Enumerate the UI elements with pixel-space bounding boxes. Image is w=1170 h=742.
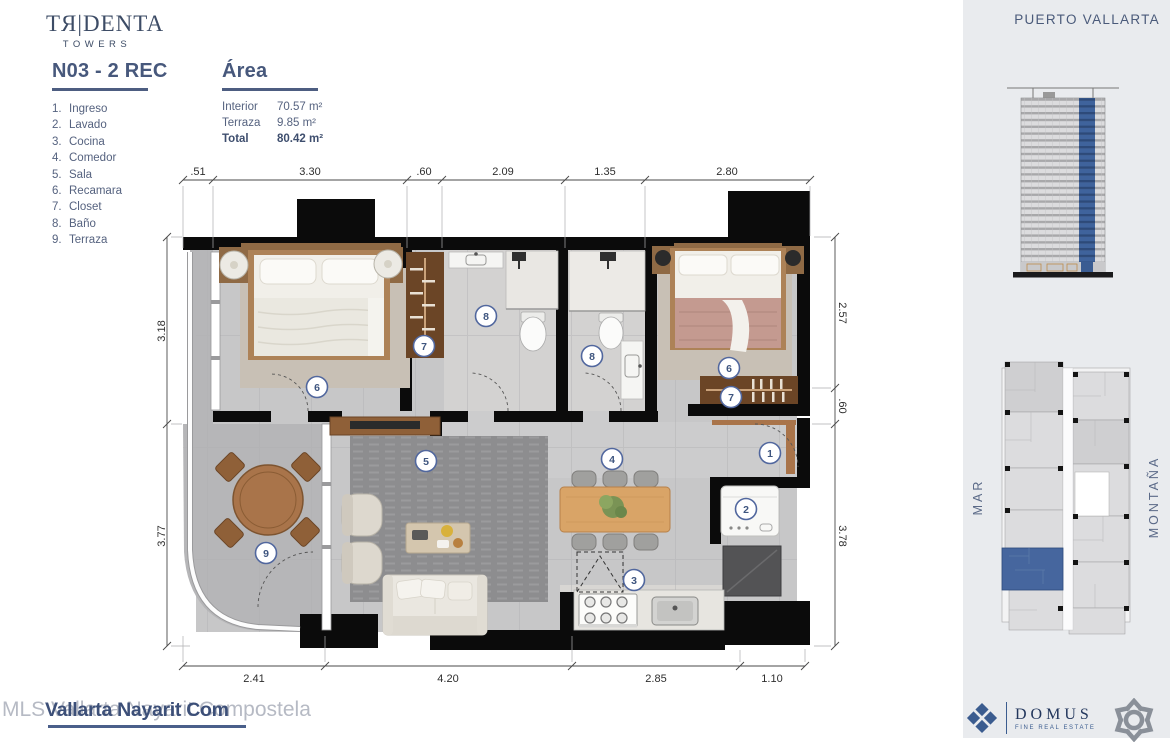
unit-title-rule [52,88,148,91]
area-row: Terraza9.85 m² [222,116,323,132]
city-label: PUERTO VALLARTA [1000,12,1160,27]
svg-text:9: 9 [263,548,269,560]
svg-text:8: 8 [483,311,489,323]
domus-tagline: FINE REAL ESTATE [1015,725,1096,731]
room-marker: 6 [719,358,740,379]
svg-text:2.85: 2.85 [645,673,666,685]
area-row: Interior70.57 m² [222,100,323,116]
closet-2 [700,376,798,404]
room-marker: 6 [307,377,328,398]
svg-text:6: 6 [726,363,732,375]
unit-title: N03 - 2 REC [52,60,168,83]
svg-text:8: 8 [589,351,595,363]
dining [560,471,670,550]
domus-pinwheel-icon [966,702,998,734]
svg-text:1.35: 1.35 [594,166,615,178]
svg-text:.60: .60 [836,398,848,413]
legend-item: 6.Recamara [52,183,122,199]
svg-text:5: 5 [423,456,429,468]
svg-text:7: 7 [728,392,734,404]
svg-text:2: 2 [743,504,749,516]
legend-item: 8.Baño [52,216,122,232]
svg-text:4.20: 4.20 [437,673,458,685]
svg-text:.51: .51 [190,166,205,178]
svg-text:3.30: 3.30 [299,166,320,178]
legend-item: 9.Terraza [52,232,122,248]
legend-item: 4.Comedor [52,150,122,166]
svg-text:1: 1 [767,448,773,460]
room-legend: 1.Ingreso 2.Lavado 3.Cocina 4.Comedor 5.… [52,101,122,249]
svg-text:2.80: 2.80 [716,166,737,178]
domus-divider [1006,702,1007,734]
legend-item: 5.Sala [52,167,122,183]
svg-text:2.09: 2.09 [492,166,513,178]
svg-text:2.57: 2.57 [836,302,848,323]
area-title: Área [222,60,267,83]
mountain-label: MONTAÑA [1147,447,1161,547]
legend-item: 7.Closet [52,199,122,215]
svg-text:3.77: 3.77 [156,525,168,546]
room-marker: 2 [736,499,757,520]
room-marker: 9 [256,543,277,564]
roof-box [1043,92,1055,98]
room-marker: 8 [476,306,497,327]
svg-text:7: 7 [421,341,427,353]
domus-name: DOMUS [1015,706,1096,724]
tower-elevation [1003,78,1123,288]
svg-text:6: 6 [314,382,320,394]
legend-item: 3.Cocina [52,134,122,150]
svg-text:3.18: 3.18 [156,320,168,341]
sea-label: MAR [971,457,985,537]
room-marker: 5 [416,451,437,472]
tower-highlight-stripe [1079,98,1095,272]
domus-logo: DOMUS FINE REAL ESTATE [966,702,1096,734]
listing-title-rule [48,725,246,728]
svg-text:4: 4 [609,454,615,466]
partner-logo-icon [1110,698,1158,742]
svg-text:1.10: 1.10 [761,673,782,685]
room-marker: 7 [721,387,742,408]
brand-logo: TЯ|DENTA TOWERS [46,11,148,50]
brand-logo-subtext: TOWERS [46,39,148,50]
listing-title: Vallarta Nayarit Com [45,699,229,722]
legend-item: 2.Lavado [52,117,122,133]
svg-text:3.78: 3.78 [836,525,848,546]
tower-base [1013,272,1113,278]
key-plan-highlight-unit [1002,548,1063,590]
svg-text:2.41: 2.41 [243,673,264,685]
room-marker: 1 [760,443,781,464]
legend-item: 1.Ingreso [52,101,122,117]
brand-logo-text: TЯ|DENTA [46,11,148,37]
svg-text:.60: .60 [416,166,431,178]
room-marker: 4 [602,449,623,470]
svg-text:3: 3 [631,575,637,587]
room-marker: 7 [414,336,435,357]
key-plan [995,360,1145,640]
room-marker: 8 [582,346,603,367]
area-title-rule [222,88,318,91]
floor-plan: .51 3.30 .60 2.09 1.35 2.80 2.41 4.20 2.… [150,140,860,700]
room-marker: 3 [624,570,645,591]
